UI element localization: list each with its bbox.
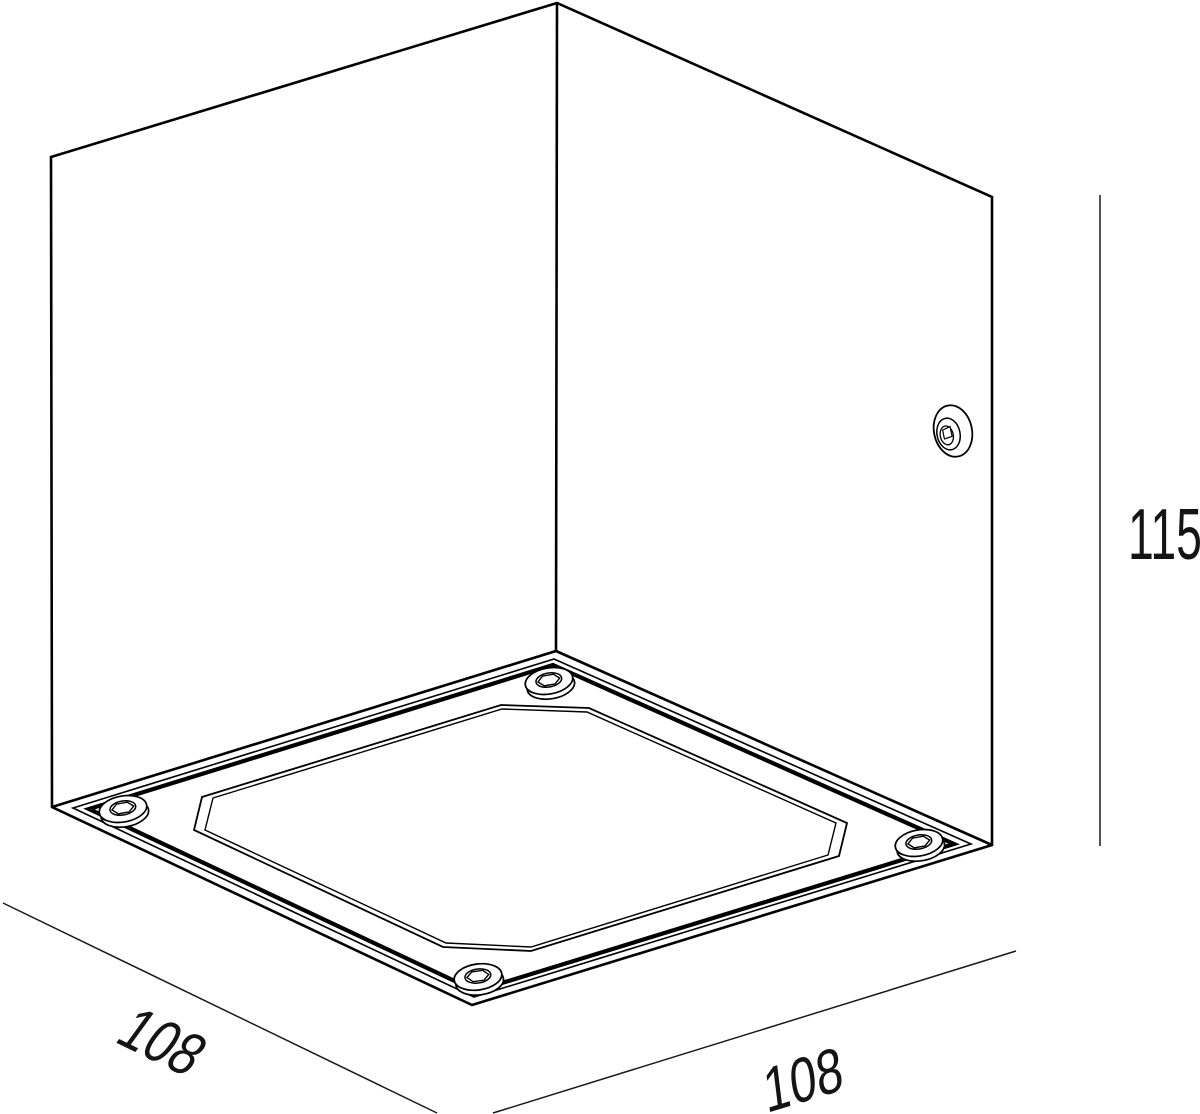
height-dimension-label: 115 <box>1128 495 1200 575</box>
cable-gland-knob <box>929 402 977 461</box>
cube-front-vertical-edge <box>556 3 557 651</box>
cube-silhouette <box>51 3 992 1005</box>
left-width-dimension-line <box>3 903 437 1113</box>
dimension-drawing-svg: 115 108 108 <box>0 0 1200 1114</box>
technical-drawing-page: 115 108 108 <box>0 0 1200 1114</box>
dimension-annotations: 115 108 108 <box>3 195 1200 1114</box>
left-width-dimension-label: 108 <box>105 995 220 1088</box>
cube-bottom-back-right-edge <box>556 651 992 845</box>
cube-bottom-back-left-edge <box>52 651 556 807</box>
diffuser-panel-outer-edge <box>194 705 847 951</box>
right-width-dimension-label: 108 <box>760 1033 847 1114</box>
bottom-face-gasket-line <box>89 665 954 991</box>
corner-screw-front <box>452 961 505 999</box>
luminaire-cube-outline <box>51 3 992 1005</box>
bottom-face-assembly <box>73 659 971 998</box>
